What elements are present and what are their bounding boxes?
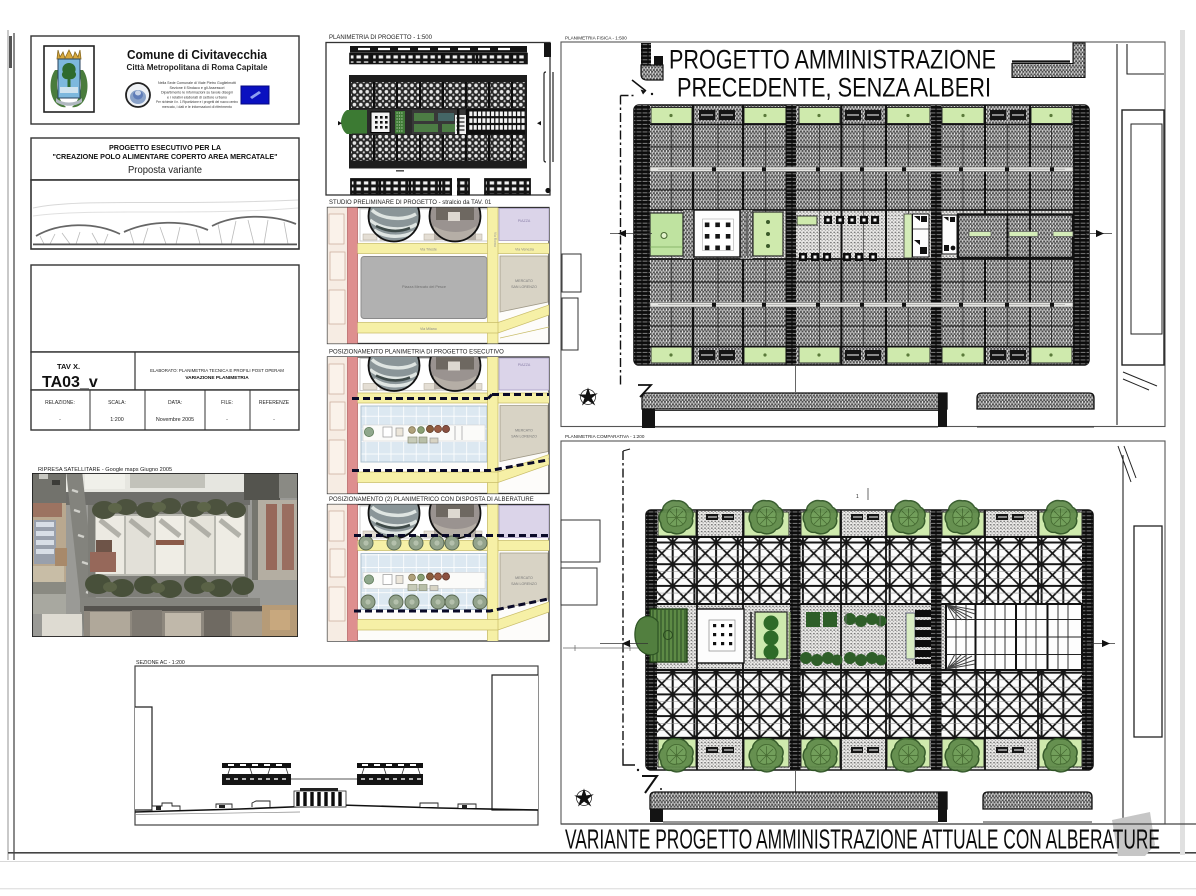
svg-text:MERCATO: MERCATO — [515, 279, 533, 283]
svg-text:Via Milano: Via Milano — [420, 327, 437, 331]
svg-text:PRECEDENTE, SENZA ALBERI: PRECEDENTE, SENZA ALBERI — [677, 73, 991, 103]
svg-text:STUDIO PRELIMINARE DI PROGETTO: STUDIO PRELIMINARE DI PROGETTO - stralci… — [329, 200, 492, 206]
svg-text:RELAZIONE:: RELAZIONE: — [45, 400, 75, 406]
svg-text:Novembre 2005: Novembre 2005 — [156, 417, 194, 423]
svg-text:1: 1 — [856, 494, 859, 500]
svg-text:-: - — [226, 417, 228, 423]
svg-text:Via Roma: Via Roma — [493, 232, 497, 247]
svg-text:e i relativi elaborati di sett: e i relativi elaborati di settore urbano — [167, 95, 227, 99]
svg-text:"CREAZIONE POLO ALIMENTARE COP: "CREAZIONE POLO ALIMENTARE COPERTO AREA … — [52, 152, 277, 161]
svg-text:FILE:: FILE: — [221, 400, 233, 406]
svg-text:PROGETTO AMMINISTRAZIONE: PROGETTO AMMINISTRAZIONE — [669, 45, 996, 75]
svg-text:PLANIMETRIA FISICA - 1:500: PLANIMETRIA FISICA - 1:500 — [565, 36, 627, 41]
svg-text:SAN LORENZO: SAN LORENZO — [511, 582, 537, 586]
svg-text:TAV X.: TAV X. — [57, 362, 80, 371]
svg-text:MERCATO: MERCATO — [515, 576, 533, 580]
svg-text:MERCATO: MERCATO — [515, 429, 533, 433]
svg-text:DATA:: DATA: — [168, 400, 182, 406]
svg-text:PIAZZA: PIAZZA — [518, 363, 531, 367]
svg-text:PIAZZA: PIAZZA — [518, 219, 531, 223]
svg-text:Via Trieste: Via Trieste — [420, 248, 437, 252]
svg-text:VARIANTE PROGETTO AMMINISTRAZI: VARIANTE PROGETTO AMMINISTRAZIONE ATTUAL… — [565, 824, 1160, 855]
svg-text:Sezione il Sindaco e gli Asse: Sezione il Sindaco e gli Assessori — [170, 86, 225, 90]
svg-text:REFERENZE: REFERENZE — [259, 400, 290, 406]
svg-text:SCALA:: SCALA: — [108, 400, 126, 406]
svg-text:SAN LORENZO: SAN LORENZO — [511, 435, 537, 439]
svg-text:RIPRESA SATELLITARE - Google: RIPRESA SATELLITARE - Google maps Giugno… — [38, 467, 172, 473]
svg-text:TA03_v: TA03_v — [42, 374, 98, 391]
svg-text:VARIAZIONE PLANIMETRIA: VARIAZIONE PLANIMETRIA — [185, 375, 249, 381]
svg-text:Proposta variante: Proposta variante — [128, 164, 202, 176]
svg-text:Piazza Mercato del Pesce: Piazza Mercato del Pesce — [402, 285, 446, 289]
svg-text:PLANIMETRIA DI PROGETTO - 1:50: PLANIMETRIA DI PROGETTO - 1:500 — [329, 35, 433, 41]
svg-text:PLANIMETRIA COMPARATIVA - 1:20: PLANIMETRIA COMPARATIVA - 1:200 — [565, 434, 645, 439]
svg-text:Città Metropolitana di Roma Ca: Città Metropolitana di Roma Capitale — [127, 63, 269, 72]
svg-text:Per richieste il n. 1 Ripartiz: Per richieste il n. 1 Ripartizione e i p… — [156, 100, 238, 104]
svg-text:-: - — [59, 417, 61, 423]
svg-text:POSIZIONAMENTO (2) PLANIMETRIC: POSIZIONAMENTO (2) PLANIMETRICO CON DISP… — [329, 497, 534, 503]
svg-text:ELABORATO: PLANIMETRIA TECNICA: ELABORATO: PLANIMETRIA TECNICA E PROFILI… — [150, 368, 284, 373]
svg-text:SAN LORENZO: SAN LORENZO — [511, 285, 537, 289]
svg-text:SEZIONE AC - 1:200: SEZIONE AC - 1:200 — [136, 660, 185, 666]
svg-text:POSIZIONAMENTO PLANIMETRIA DI: POSIZIONAMENTO PLANIMETRIA DI PROGETTO E… — [329, 350, 504, 356]
svg-text:Via Venezia: Via Venezia — [515, 248, 534, 252]
svg-text:-: - — [273, 417, 275, 423]
svg-text:PROGETTO ESECUTIVO PER LA: PROGETTO ESECUTIVO PER LA — [109, 143, 221, 152]
svg-text:Comune di Civitavecchia: Comune di Civitavecchia — [127, 48, 268, 62]
svg-text:Nella Sede Comunale di Viale P: Nella Sede Comunale di Viale Pietro Gugl… — [158, 81, 236, 85]
svg-text:Dipartimento le informazioni: Dipartimento le informazioni su tavole d… — [161, 91, 233, 95]
svg-text:mercato, i dati e le informazi: mercato, i dati e le informazioni di rif… — [162, 105, 232, 109]
svg-text:1:200: 1:200 — [110, 417, 124, 423]
